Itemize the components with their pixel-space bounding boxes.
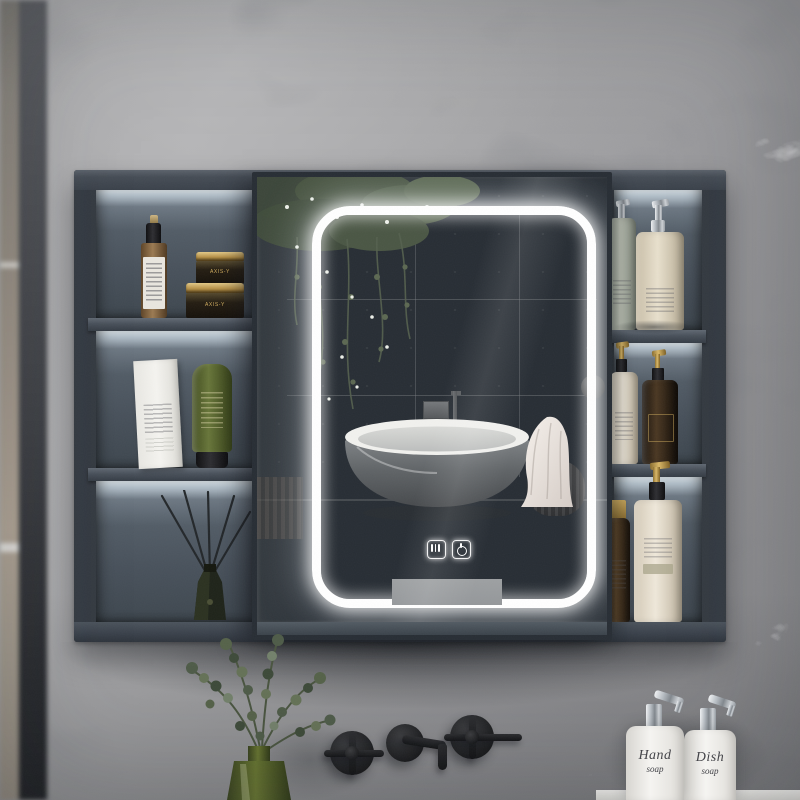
cream-pump-bottle-top — [636, 200, 684, 330]
left-shelf-2 — [88, 468, 266, 481]
jar-top-label: AXIS-Y — [196, 269, 244, 275]
green-glass-pump-bottle — [608, 194, 636, 330]
amber-gold-pump-bottle — [642, 350, 678, 464]
diffuser-sticks — [150, 490, 260, 622]
hand-soap-label-line1: Hand — [626, 748, 684, 764]
defog-touch-button[interactable] — [427, 540, 446, 559]
reed-diffuser — [150, 490, 260, 622]
jar-bottom-label: AXIS-Y — [186, 302, 244, 308]
left-shelf-1 — [88, 318, 266, 331]
eucalyptus-leaves — [186, 634, 336, 741]
large-cream-gold-pump-bottle — [634, 462, 682, 622]
jar-top-body: AXIS-Y — [196, 261, 244, 284]
cream-gold-pump-bottle — [610, 342, 638, 464]
white-cosmetic-box — [133, 359, 183, 469]
spray-head — [146, 223, 161, 244]
mirror-cabinet: AXIS-Y AXIS-Y — [74, 170, 726, 642]
hand-soap-label-line2: soap — [626, 764, 684, 774]
spray-label — [143, 257, 165, 309]
green-cosmetic-tube — [192, 364, 232, 468]
foreground-dark-trim — [19, 0, 47, 800]
amber-spray-bottle — [141, 215, 167, 318]
eucalyptus-vase — [170, 628, 440, 800]
jar-bottom-lid — [186, 283, 244, 293]
mirror-glass — [257, 177, 607, 622]
foreground-beige-panel — [0, 0, 19, 800]
led-mirror-door[interactable] — [252, 172, 612, 640]
green-glass-vase — [227, 746, 291, 800]
foreground-shelf-line-upper — [0, 262, 19, 268]
jar-bottom-body: AXIS-Y — [186, 293, 244, 318]
tube-cap — [196, 452, 228, 468]
scene: AXIS-Y AXIS-Y — [0, 0, 800, 800]
hand-soap-dispenser: Hand soap — [626, 686, 696, 800]
foreground-cabinet-edge — [0, 0, 48, 800]
jar-top-lid — [196, 252, 244, 261]
led-bottom-gap — [392, 579, 502, 605]
power-touch-button[interactable] — [452, 540, 471, 559]
foreground-shelf-line-lower — [0, 543, 19, 552]
reflected-wood-slats — [257, 477, 303, 539]
cosmetic-jar-stack: AXIS-Y AXIS-Y — [186, 252, 244, 318]
